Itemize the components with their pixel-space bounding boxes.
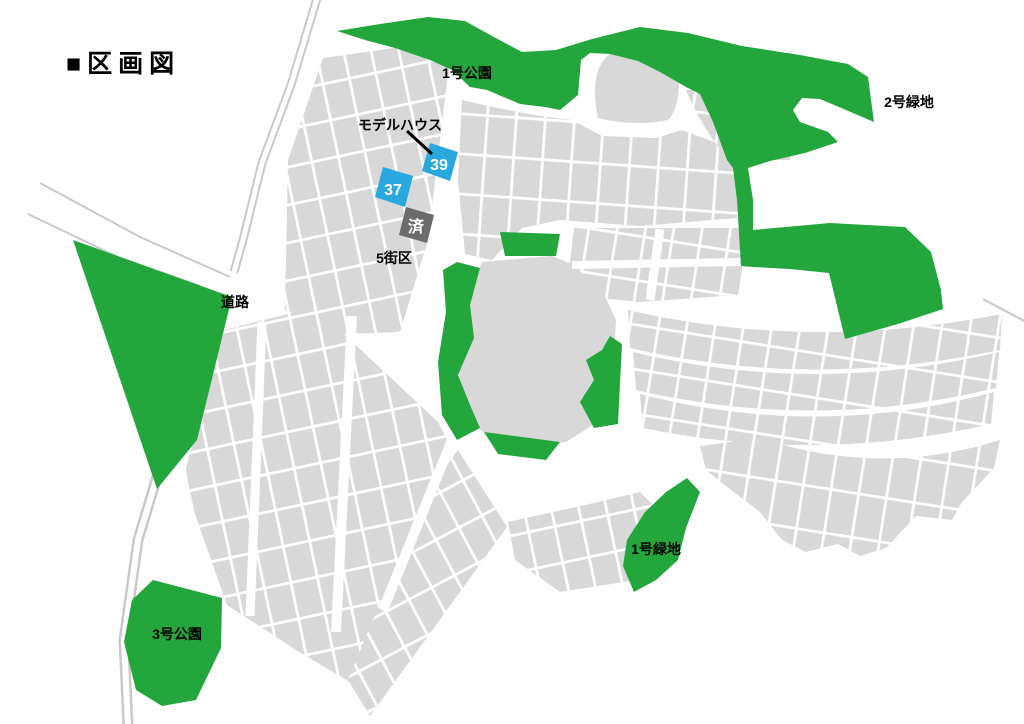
- label-block5: 5街区: [376, 250, 412, 266]
- lot-37-number: 37: [384, 182, 402, 199]
- label-green2: 2号緑地: [884, 94, 934, 110]
- label-green1: 1号緑地: [631, 541, 681, 557]
- label-road: 道路: [221, 294, 250, 310]
- page-title: ■区画図: [66, 50, 180, 78]
- lot-map-page: ■区画図 1号公園 2号緑地 モデルハウス 5街区 道路 1号緑地 3号公園 3…: [0, 0, 1024, 724]
- lot-sold-label: 済: [408, 217, 425, 236]
- label-park3: 3号公園: [152, 626, 202, 642]
- label-park1: 1号公園: [442, 65, 492, 81]
- label-model-house: モデルハウス: [358, 117, 442, 133]
- lot-39-number: 39: [430, 157, 448, 174]
- subdivision-map: ■区画図 1号公園 2号緑地 モデルハウス 5街区 道路 1号緑地 3号公園 3…: [0, 0, 1024, 724]
